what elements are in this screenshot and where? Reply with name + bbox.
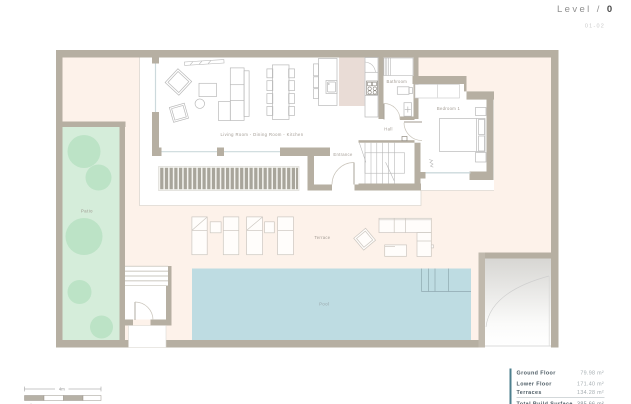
svg-text:Pool: Pool bbox=[319, 302, 329, 307]
svg-text:Lower Floor: Lower Floor bbox=[517, 381, 553, 387]
svg-text:134.28 m²: 134.28 m² bbox=[577, 390, 604, 396]
svg-text:Entrance: Entrance bbox=[333, 152, 353, 157]
svg-text:Terraces: Terraces bbox=[517, 390, 542, 396]
svg-text:Hall: Hall bbox=[384, 127, 392, 132]
svg-text:Bathroom: Bathroom bbox=[387, 79, 408, 84]
svg-text:Terrace: Terrace bbox=[314, 235, 330, 240]
svg-text:01-02: 01-02 bbox=[585, 24, 605, 30]
svg-text:4m: 4m bbox=[59, 387, 65, 392]
svg-text:79.98 m²: 79.98 m² bbox=[580, 371, 604, 377]
svg-text:Ground Floor: Ground Floor bbox=[517, 371, 557, 377]
svg-text:Living Room - Dining Room - Ki: Living Room - Dining Room - Kitchen bbox=[221, 132, 304, 137]
svg-text:Patio: Patio bbox=[81, 209, 93, 214]
svg-text:171.40 m²: 171.40 m² bbox=[577, 381, 604, 387]
svg-text:Level / 0: Level / 0 bbox=[557, 4, 615, 15]
svg-text:Bedroom 1: Bedroom 1 bbox=[437, 106, 461, 111]
